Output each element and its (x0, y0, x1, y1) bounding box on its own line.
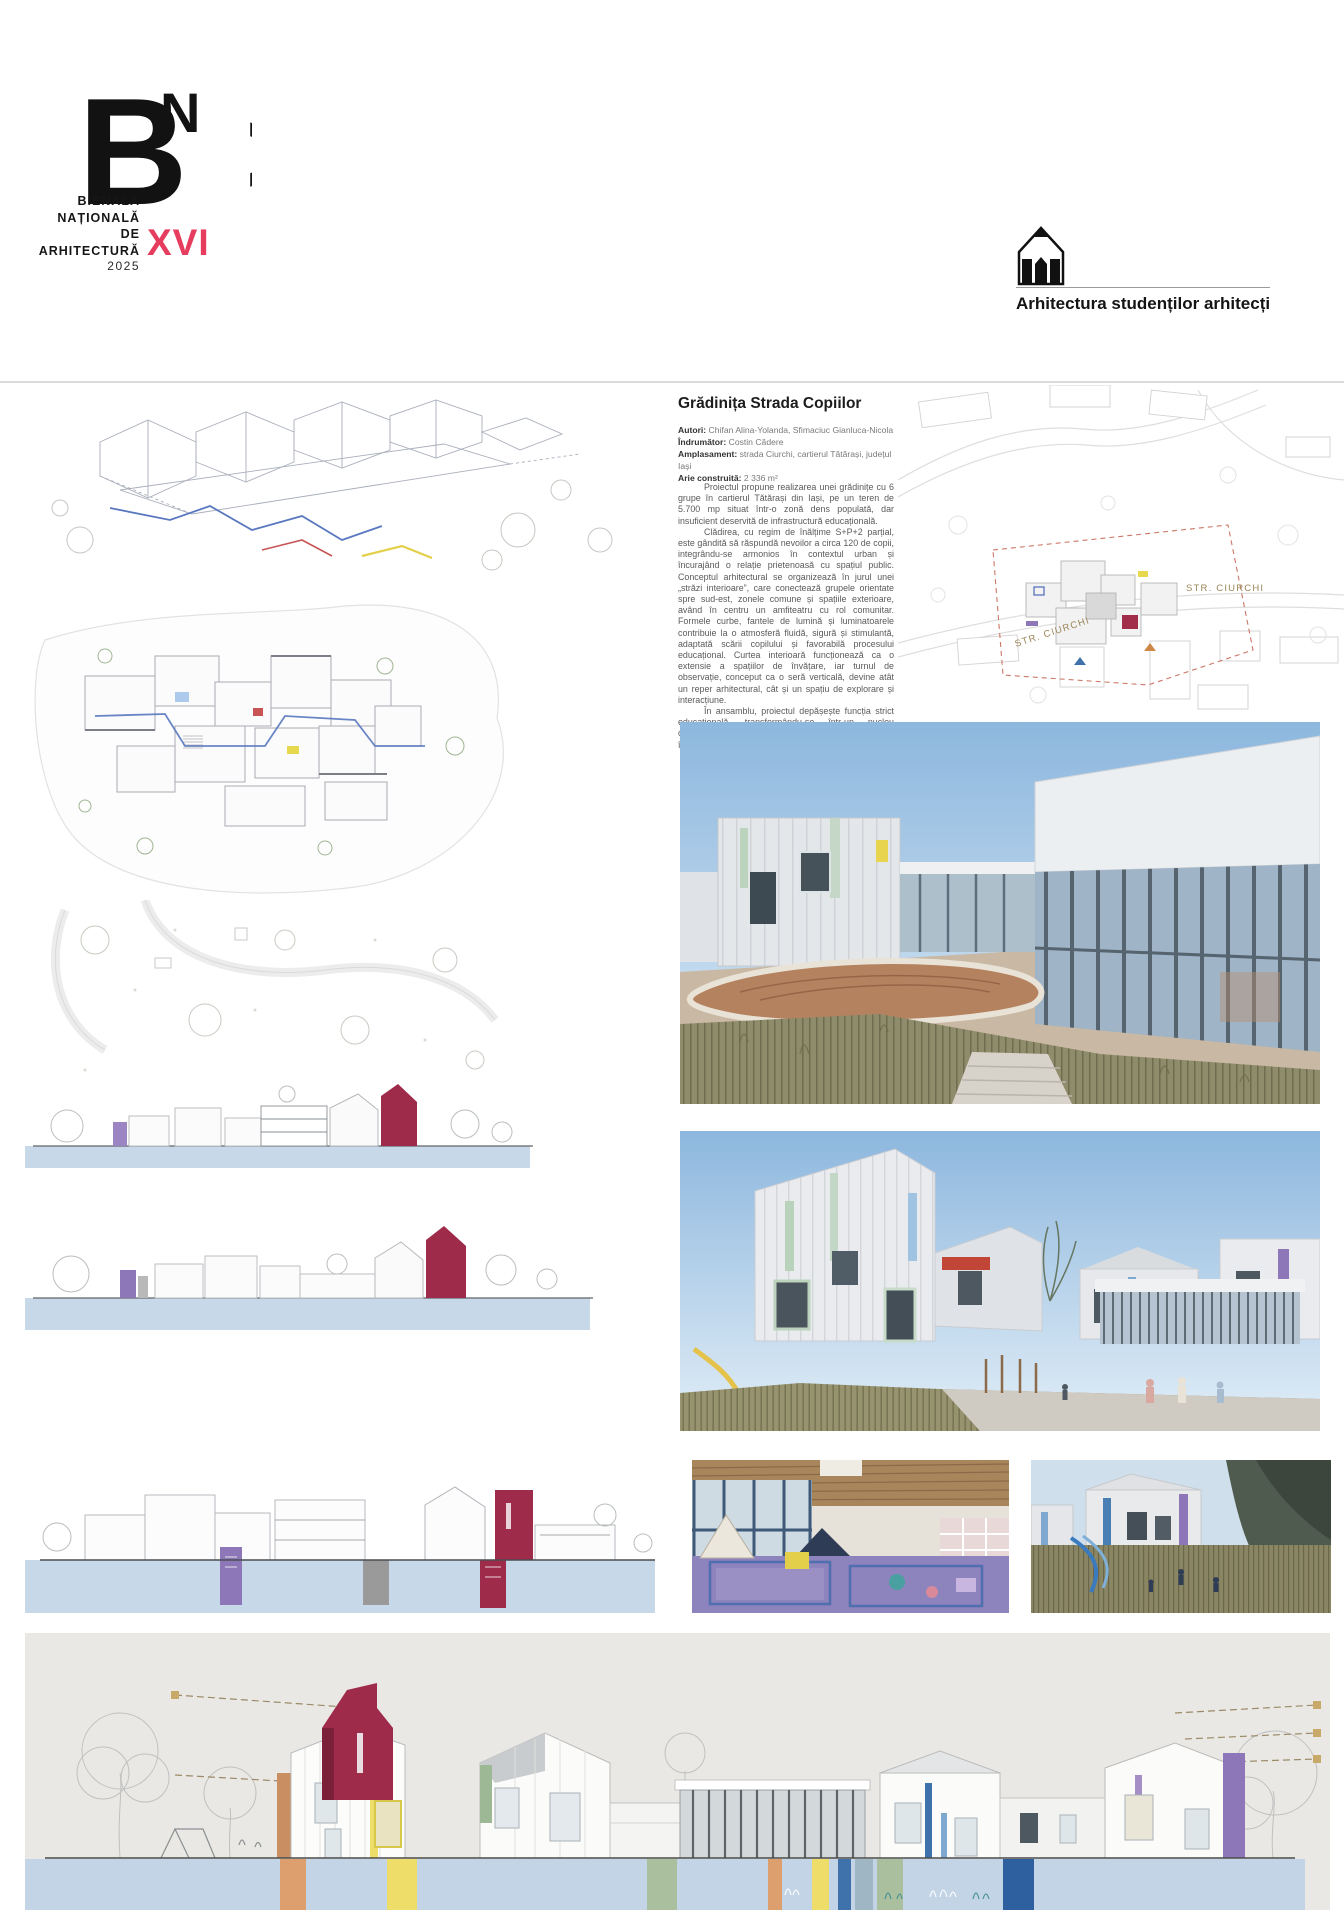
meta-authors-value: Chifan Alina-Yolanda, Sfimaciuc Gianluca… (706, 425, 893, 435)
project-title: Grădinița Strada Copiilor (678, 395, 898, 413)
meta-location-label: Amplasament: (678, 449, 737, 459)
long-elevation (25, 1633, 1330, 1910)
logo-line-1: BIENALA (30, 193, 140, 210)
ground-floor-plan (25, 596, 545, 908)
description-paragraph-1: Proiectul propune realizarea unei grădin… (678, 482, 894, 527)
meta-tutor-label: Îndrumător: (678, 437, 726, 447)
logo-line-4: ARHITECTURĂ (30, 243, 140, 260)
project-meta: Autori: Chifan Alina-Yolanda, Sfimaciuc … (678, 424, 895, 484)
courtyard-render (680, 722, 1320, 1104)
brand-underline (1016, 287, 1270, 288)
playground-render (1031, 1460, 1331, 1613)
section-title: Arhitectura studenților arhitecți (1016, 294, 1306, 314)
description-paragraph-2: Clădirea, cu regim de înălțime S+P+2 par… (678, 527, 894, 706)
project-description: Proiectul propune realizarea unei grădin… (678, 482, 894, 751)
meta-location: Amplasament: strada Ciurchi, cartierul T… (678, 448, 895, 472)
edition-number: XVI (147, 222, 210, 264)
elevation-strip-1 (25, 1046, 545, 1168)
meta-authors: Autori: Chifan Alina-Yolanda, Sfimaciuc … (678, 424, 895, 436)
svg-text:N: N (160, 81, 200, 144)
logo-wordmark: BIENALA NAȚIONALĂ DE ARHITECTURĂ (30, 193, 140, 259)
axonometric-drawing (40, 358, 640, 590)
street-label-right: STR. CIURCHI (1186, 583, 1264, 594)
street-render (680, 1131, 1320, 1431)
section-strip (25, 1395, 670, 1613)
logo-line-3: DE (30, 226, 140, 243)
pencil-house-icon (1016, 226, 1066, 286)
meta-authors-label: Autori: (678, 425, 706, 435)
long-elevation-panel (25, 1633, 1330, 1910)
presentation-board: B N A BIENALA NAȚIONALĂ DE ARHITECTURĂ 2… (0, 0, 1344, 1920)
interior-render (692, 1460, 1009, 1613)
elevation-strip-2 (25, 1178, 605, 1330)
meta-tutor-value: Costin Cădere (726, 437, 783, 447)
svg-text:A: A (229, 120, 252, 189)
logo-year: 2025 (30, 259, 140, 273)
meta-tutor: Îndrumător: Costin Cădere (678, 436, 895, 448)
logo-line-2: NAȚIONALĂ (30, 210, 140, 227)
site-plan: STR. CIURCHI STR. CIURCHI (898, 385, 1344, 713)
